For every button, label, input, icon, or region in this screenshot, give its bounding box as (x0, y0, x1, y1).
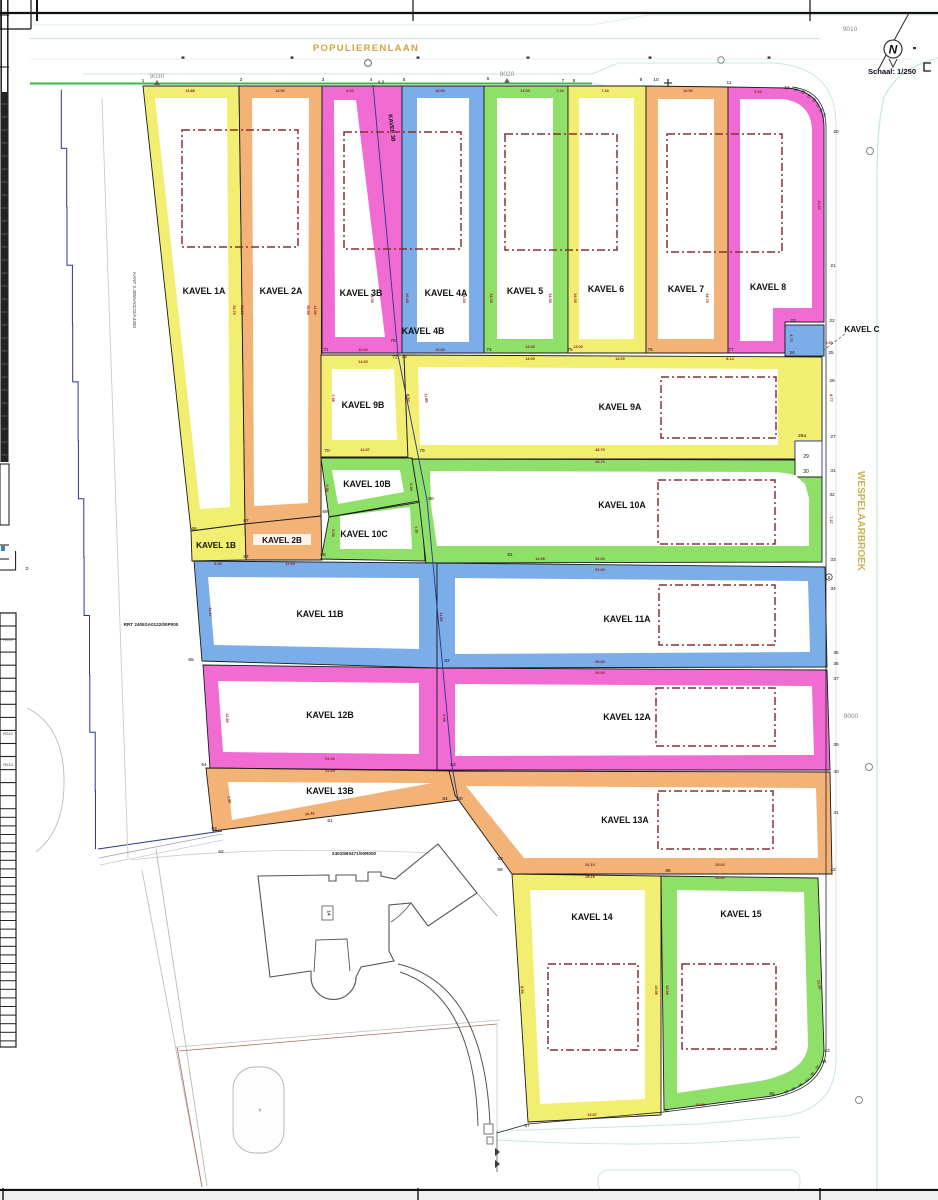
svg-text:8: 8 (573, 78, 576, 84)
svg-text:67: 67 (243, 554, 249, 560)
svg-text:KAVEL 3B: KAVEL 3B (340, 288, 383, 298)
svg-text:12.87: 12.87 (360, 448, 370, 452)
svg-text:13.00: 13.00 (525, 345, 535, 349)
svg-text:36.00: 36.00 (405, 293, 409, 303)
svg-text:13.00: 13.00 (615, 357, 625, 361)
svg-text:10.00: 10.00 (435, 348, 445, 352)
svg-text:KAVEL 10C: KAVEL 10C (340, 529, 388, 539)
svg-text:7.27: 7.27 (829, 516, 833, 523)
svg-text:34.35: 34.35 (573, 293, 577, 303)
svg-text:37: 37 (833, 676, 839, 682)
svg-text:14.00: 14.00 (358, 360, 368, 364)
svg-text:48.00: 48.00 (575, 769, 585, 773)
svg-text:42: 42 (830, 867, 836, 873)
svg-text:58: 58 (497, 867, 503, 873)
svg-text:6.00: 6.00 (825, 341, 832, 345)
svg-text:78: 78 (390, 338, 396, 344)
svg-text:KAVEL 1A: KAVEL 1A (183, 286, 226, 296)
svg-text:41: 41 (833, 810, 839, 816)
svg-text:KAVEL 11A: KAVEL 11A (603, 614, 651, 624)
svg-text:13.50: 13.50 (275, 89, 285, 93)
svg-text:65: 65 (188, 657, 194, 663)
svg-text:KAVEL 13B: KAVEL 13B (306, 786, 354, 796)
svg-text:34.35: 34.35 (548, 293, 552, 303)
svg-text:9020: 9020 (500, 71, 515, 78)
svg-text:13.88: 13.88 (185, 89, 195, 93)
svg-text:8.77: 8.77 (829, 394, 833, 401)
svg-text:KAVEL 15: KAVEL 15 (720, 909, 761, 919)
svg-text:68: 68 (320, 552, 326, 558)
svg-text:34.70: 34.70 (232, 305, 236, 315)
svg-text:8.50: 8.50 (406, 394, 411, 402)
svg-text:55: 55 (769, 1091, 775, 1097)
svg-text:R013: R013 (3, 731, 13, 736)
svg-text:34.35: 34.35 (462, 293, 466, 303)
svg-text:56: 56 (663, 1108, 669, 1114)
svg-text:R013: R013 (3, 637, 13, 642)
svg-text:60: 60 (457, 796, 463, 802)
svg-text:2403SB0471/00R000: 2403SB0471/00R000 (332, 851, 377, 856)
svg-text:2: 2 (240, 77, 243, 83)
svg-text:70: 70 (324, 448, 330, 454)
svg-text:33: 33 (830, 557, 836, 563)
svg-text:63: 63 (450, 762, 456, 768)
svg-text:11.50: 11.50 (225, 713, 229, 722)
svg-text:9030: 9030 (150, 73, 165, 80)
svg-text:11: 11 (727, 80, 732, 86)
svg-text:3: 3 (322, 77, 325, 83)
svg-text:KAVEL 10B: KAVEL 10B (343, 479, 391, 489)
svg-text:81: 81 (507, 552, 513, 558)
svg-text:40: 40 (833, 769, 839, 775)
svg-text:61: 61 (327, 818, 333, 824)
svg-text:11.87: 11.87 (208, 607, 212, 616)
svg-text:19.98: 19.98 (665, 985, 669, 995)
svg-text:26.10: 26.10 (585, 863, 595, 867)
svg-text:34: 34 (830, 586, 836, 592)
svg-text:84: 84 (442, 796, 448, 802)
svg-text:79: 79 (419, 448, 425, 454)
svg-text:50.00: 50.00 (595, 671, 605, 675)
svg-text:KAVEL 1B: KAVEL 1B (196, 541, 236, 550)
svg-text:64: 64 (201, 762, 207, 768)
svg-text:11.80: 11.80 (439, 612, 443, 621)
svg-text:24.80: 24.80 (715, 876, 725, 880)
svg-text:1: 1 (142, 78, 145, 84)
svg-text:10: 10 (653, 77, 659, 83)
svg-text:14: 14 (327, 910, 332, 916)
svg-text:19.87: 19.87 (587, 1113, 597, 1117)
svg-text:KAVEL 14: KAVEL 14 (571, 912, 612, 922)
svg-text:11.60: 11.60 (817, 200, 821, 209)
svg-text:KAVEL 4B: KAVEL 4B (402, 326, 445, 336)
svg-text:13.00: 13.00 (573, 345, 583, 349)
svg-text:KAVEL C: KAVEL C (844, 325, 879, 334)
svg-text:34.35: 34.35 (489, 293, 493, 303)
svg-text:10.50: 10.50 (683, 89, 693, 93)
svg-text:12: 12 (784, 85, 790, 91)
svg-text:9000: 9000 (844, 713, 859, 720)
svg-text:6.00: 6.00 (346, 89, 353, 93)
svg-text:6: 6 (487, 76, 490, 82)
svg-text:43: 43 (824, 1048, 830, 1054)
svg-text:74: 74 (486, 347, 492, 353)
svg-text:10.00: 10.00 (435, 89, 445, 93)
svg-text:12.90: 12.90 (285, 562, 295, 566)
svg-text:13.00: 13.00 (520, 89, 530, 93)
svg-text:51.06: 51.06 (325, 757, 335, 761)
svg-text:39: 39 (833, 742, 839, 748)
svg-text:11.80: 11.80 (424, 393, 429, 403)
svg-text:8.55: 8.55 (520, 986, 525, 994)
svg-text:7.43: 7.43 (556, 89, 563, 93)
svg-text:51.84: 51.84 (325, 769, 335, 773)
svg-text:20: 20 (833, 129, 839, 135)
svg-text:50.00: 50.00 (595, 660, 605, 664)
svg-text:6.00: 6.00 (409, 483, 413, 490)
svg-text:7: 7 (562, 78, 565, 84)
svg-text:9010: 9010 (843, 26, 858, 33)
svg-text:32: 32 (829, 492, 835, 498)
svg-text:13.00: 13.00 (525, 357, 535, 361)
svg-text:7.43: 7.43 (601, 89, 608, 93)
svg-text:67: 67 (243, 518, 249, 524)
svg-text:25.19: 25.19 (585, 875, 595, 879)
svg-text:9.98: 9.98 (325, 484, 329, 491)
svg-text:KAVEL 6: KAVEL 6 (588, 284, 624, 294)
svg-text:KAVEL 4A: KAVEL 4A (425, 288, 468, 298)
svg-text:69: 69 (322, 509, 328, 515)
svg-text:KAVEL 12A: KAVEL 12A (603, 712, 651, 722)
svg-text:73: 73 (401, 354, 407, 360)
svg-text:62: 62 (218, 849, 224, 855)
svg-text:KAVEL 11B: KAVEL 11B (296, 609, 343, 619)
svg-text:10.00: 10.00 (358, 348, 368, 352)
svg-text:44: 44 (821, 1059, 827, 1065)
svg-text:82: 82 (444, 658, 450, 664)
svg-text:83: 83 (211, 826, 217, 832)
svg-text:5: 5 (403, 77, 406, 83)
svg-text:14.98: 14.98 (695, 1103, 705, 1107)
svg-text:52.00: 52.00 (595, 568, 605, 572)
svg-text:77: 77 (728, 347, 734, 353)
svg-text:52.00: 52.00 (595, 557, 605, 561)
svg-text:9.00: 9.00 (754, 90, 761, 94)
svg-text:76: 76 (647, 347, 653, 353)
svg-text:48.70: 48.70 (595, 460, 605, 464)
svg-text:25.02: 25.02 (715, 863, 725, 867)
svg-text:59: 59 (497, 856, 503, 862)
svg-text:29: 29 (803, 454, 809, 460)
svg-text:R013: R013 (3, 762, 13, 767)
svg-text:7.98: 7.98 (331, 394, 335, 401)
svg-text:4.75: 4.75 (789, 334, 793, 341)
svg-text:31.10: 31.10 (240, 305, 244, 315)
svg-text:72: 72 (392, 355, 398, 361)
svg-text:57: 57 (524, 1123, 530, 1129)
svg-text:19.98: 19.98 (654, 985, 658, 995)
svg-text:KAVEL 10A: KAVEL 10A (598, 500, 646, 510)
svg-text:85: 85 (665, 868, 671, 874)
svg-text:Schaal: 1/250: Schaal: 1/250 (868, 67, 916, 76)
svg-text:31: 31 (830, 468, 836, 474)
svg-text:25: 25 (828, 350, 834, 356)
svg-text:9: 9 (640, 77, 643, 83)
svg-text:8.14: 8.14 (726, 357, 734, 361)
svg-text:D: D (25, 566, 28, 571)
svg-text:KANT 2.405SA0122/A4400: KANT 2.405SA0122/A4400 (132, 272, 137, 328)
svg-text:9.98: 9.98 (442, 714, 446, 721)
svg-text:4: 4 (370, 77, 373, 83)
svg-text:23: 23 (790, 318, 796, 324)
svg-text:KAVEL 13A: KAVEL 13A (601, 815, 649, 825)
svg-text:KAVEL 12B: KAVEL 12B (306, 710, 354, 720)
svg-text:21: 21 (830, 263, 836, 269)
svg-text:48.70: 48.70 (595, 448, 605, 452)
svg-text:5.00: 5.00 (331, 529, 335, 536)
svg-text:35: 35 (833, 650, 839, 656)
svg-text:80: 80 (428, 496, 434, 502)
svg-text:36: 36 (833, 661, 839, 667)
svg-text:KAVEL 5: KAVEL 5 (507, 286, 543, 296)
svg-text:WESPELAARBROEK: WESPELAARBROEK (855, 471, 866, 572)
svg-text:75: 75 (567, 347, 573, 353)
svg-text:22: 22 (829, 318, 835, 324)
svg-text:26: 26 (829, 378, 835, 384)
svg-text:KAVEL 9A: KAVEL 9A (599, 402, 642, 412)
svg-text:N: N (889, 43, 898, 57)
svg-text:KAVEL 7: KAVEL 7 (668, 284, 704, 294)
svg-text:71: 71 (323, 347, 329, 353)
svg-text:34.70: 34.70 (705, 293, 709, 303)
svg-text:KAVEL 9B: KAVEL 9B (342, 400, 385, 410)
svg-text:66: 66 (191, 526, 197, 532)
svg-text:27: 27 (830, 434, 836, 440)
svg-text:4.0: 4.0 (378, 80, 385, 86)
svg-text:14.98: 14.98 (535, 557, 545, 561)
svg-text:KAVEL 8: KAVEL 8 (750, 282, 786, 292)
svg-text:34.35: 34.35 (370, 293, 374, 303)
svg-text:RRT 2405SA0122/00P000: RRT 2405SA0122/00P000 (124, 622, 179, 627)
svg-text:30: 30 (803, 469, 809, 475)
svg-text:24: 24 (789, 350, 795, 356)
svg-text:KAVEL 2B: KAVEL 2B (262, 536, 302, 545)
svg-text:KAVEL 2A: KAVEL 2A (260, 286, 303, 296)
svg-text:28a: 28a (798, 433, 806, 439)
svg-text:5.00: 5.00 (214, 562, 221, 566)
svg-text:P: P (257, 1108, 262, 1111)
svg-text:11.90: 11.90 (313, 305, 317, 314)
svg-text:30.90: 30.90 (306, 305, 310, 315)
svg-text:POPULIERENLAAN: POPULIERENLAAN (313, 43, 419, 54)
